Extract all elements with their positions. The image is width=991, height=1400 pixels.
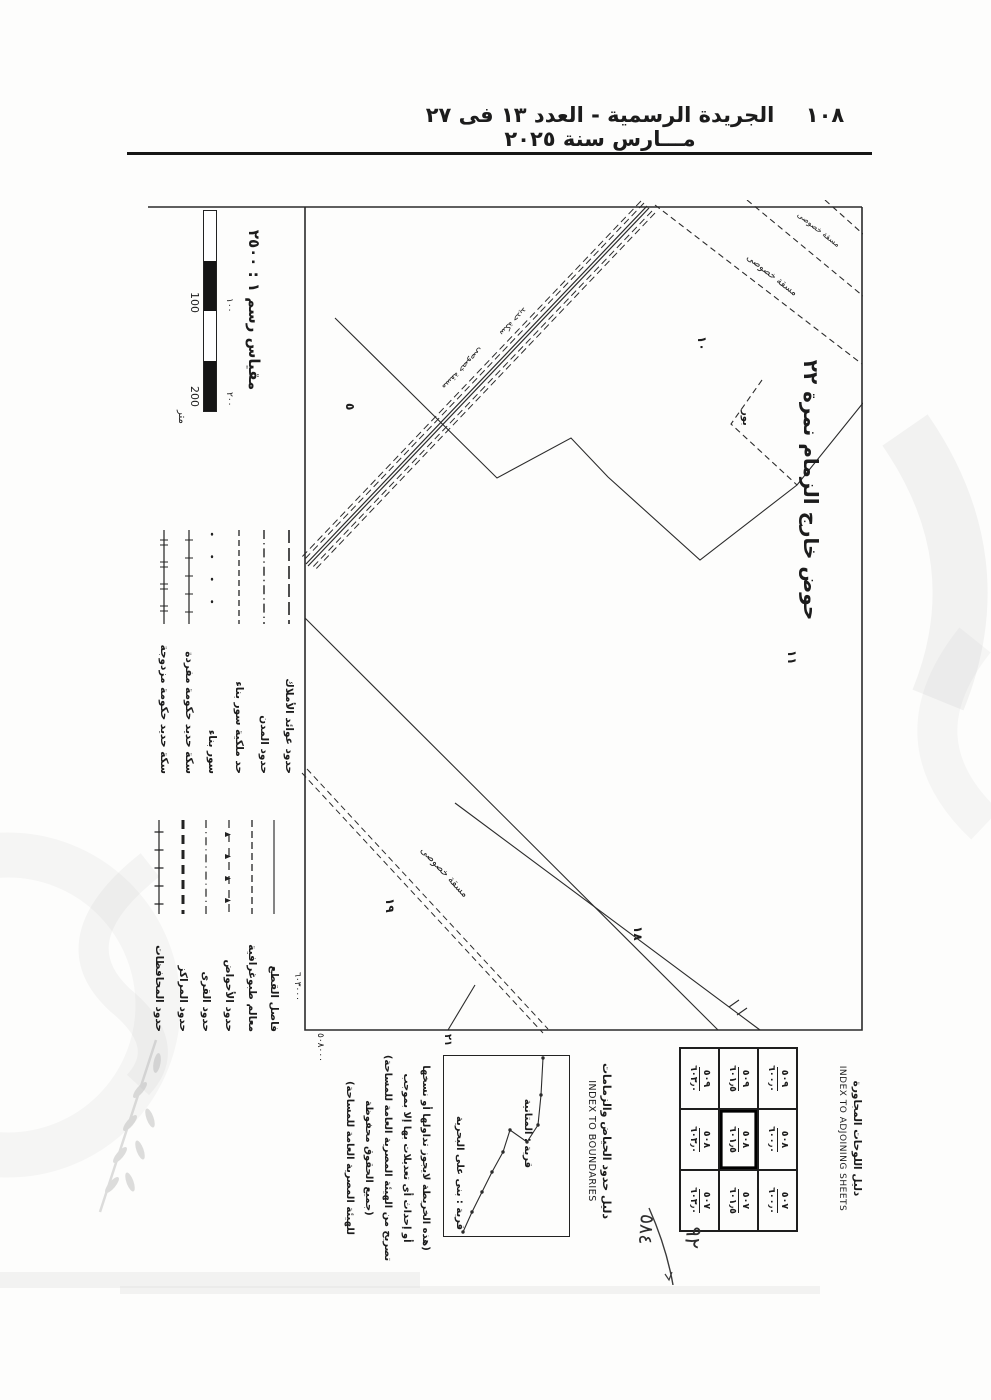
legend-sample-dotted xyxy=(207,530,219,624)
copyright-line: للهيئة المصرية العامة للمساحة) xyxy=(344,1042,355,1274)
land-use-label: بور xyxy=(740,410,751,426)
adjoining-sheet-cell: ٥٠٧٦٠٣٫٠ xyxy=(680,1170,719,1231)
legend-row: فاصل القطع xyxy=(267,820,282,1042)
sheet-col: ٥٠٨ xyxy=(701,1131,711,1148)
adjoining-sheet-cell: ٥٠٧٦٠١٫٥ xyxy=(719,1170,758,1231)
sheet-row: ٦٠٠٫٠ xyxy=(766,1065,776,1092)
sheet-row: ٦٠١٫٥ xyxy=(727,1187,737,1214)
legend-label: سكة حديد حكومة مزدوجة xyxy=(159,624,171,784)
adjoining-index-title-en: INDEX TO ADJOINING SHEETS xyxy=(837,1047,847,1230)
plot-number-18: ١٨ xyxy=(631,926,645,941)
corner-coordinate-east: ٥٠٨٠٠٠ xyxy=(315,1033,325,1062)
scale-200-latin: 200 xyxy=(188,386,201,407)
gazette-header-title: الجريدة الرسمية - العدد ١٣ فى ٢٧ مـــارس… xyxy=(400,103,800,151)
legend-row: حدود المدن xyxy=(257,530,272,784)
sheet-col: ٥٠٨ xyxy=(740,1131,750,1148)
sheet-row: ٦٠٣٫٠ xyxy=(688,1187,698,1214)
plot-number-11: ١١ xyxy=(785,650,799,665)
handwritten-number-top: ٩٢ xyxy=(679,1224,706,1250)
legend-row: حدود القرى xyxy=(199,820,214,1042)
scale-100-arabic: ١٠٠ xyxy=(224,298,234,313)
sheet-row: ٦٠١٫٥ xyxy=(727,1065,737,1092)
legend-sample-solid xyxy=(269,820,281,914)
legend-row: حدود المحافظات xyxy=(152,820,167,1042)
adjoining-sheet-cell: ٥٠٨٦٠٠٫٠ xyxy=(758,1109,797,1170)
legend-sample-dashed xyxy=(234,530,246,624)
scale-200-arabic: ٢٠٠ xyxy=(224,392,234,407)
legend-sample-rail-double xyxy=(159,530,171,624)
legend-label: حدود الأحواض xyxy=(224,914,236,1042)
adjoining-sheet-cell: ٥٠٩٦٠٣٫٠ xyxy=(680,1048,719,1109)
legend-row: معالم طبوغرافية xyxy=(245,820,260,1042)
legend-label: حدود المراكز xyxy=(178,914,190,1042)
plot-number-5: ٥ xyxy=(343,403,357,410)
adjoining-sheet-cell: ٥٠٩٦٠١٫٥ xyxy=(719,1048,758,1109)
corner-coordinate-north: ٦٠٣٠٠٠ xyxy=(292,972,302,1001)
copyright-line: (جميع الحقوق محفوظة xyxy=(363,1042,374,1274)
plot-number-19: ١٩ xyxy=(383,898,397,913)
sheet-col: ٥٠٩ xyxy=(779,1070,789,1087)
legend-row: حد ملكية سور بناء xyxy=(232,530,247,784)
sheet-row: ٦٠١٫٥ xyxy=(727,1126,737,1153)
legend-label: حدود عوائد الأملاك xyxy=(284,624,296,784)
plot-number-10: ١٠ xyxy=(695,336,709,351)
sheet-col: ٥٠٩ xyxy=(701,1070,711,1087)
adjoining-sheet-cell-current: ٥٠٨٦٠١٫٥ xyxy=(719,1109,758,1170)
legend-sample-dash-dot xyxy=(259,530,271,624)
copyright-line: (هذه الخريطة لايجوز تداولها أو نسخها xyxy=(420,1042,431,1274)
scale-100-latin: 100 xyxy=(188,292,201,313)
scale-bar-segment xyxy=(204,261,216,311)
legend-label: معالم طبوغرافية xyxy=(247,914,259,1042)
cadastral-map-sheet: مقياس رسم ١ : ٢٥٠٠ ١٠٠ ٢٠٠ 100 200 متر ح… xyxy=(148,200,863,1285)
adjoining-sheets-grid: ٥٠٩٦٠٠٫٠ ٥٠٨٦٠٠٫٠ ٥٠٧٦٠٠٫٠ ٥٠٩٦٠١٫٥ ٥٠٨٦… xyxy=(679,1047,798,1232)
boundaries-index-title-en: INDEX TO BOUNDARIES xyxy=(586,1045,597,1237)
header-rule xyxy=(127,152,872,155)
scale-bar-segment xyxy=(204,361,216,411)
legend-label: حد ملكية سور بناء xyxy=(234,624,246,784)
scale-unit: متر xyxy=(176,410,187,424)
adjoining-sheet-cell: ٥٠٨٦٠٣٫٠ xyxy=(680,1109,719,1170)
scale-bar-segment xyxy=(204,211,216,261)
village-name-top: قرية : المتانية xyxy=(522,1068,533,1168)
copyright-line: تصريح من الهيئة المصرية العامة للمساحة) xyxy=(382,1042,393,1274)
sheet-col: ٥٠٧ xyxy=(740,1192,750,1209)
village-name-bottom: قرية : بنى على البحرية xyxy=(454,1080,465,1230)
edge-sheet-number-21: ٢١ xyxy=(442,1034,453,1046)
sheet-col: ٥٠٧ xyxy=(701,1192,711,1209)
legend-label: فاصل القطع xyxy=(269,914,281,1042)
legend-sample-dash-dot xyxy=(201,820,213,914)
legend-sample-long-dash xyxy=(284,530,296,624)
copyright-line: أو إحداث أى تعديلات بها إلا بموجب xyxy=(401,1042,412,1274)
handwritten-number-bottom: ٥٨٤ xyxy=(634,1213,658,1245)
legend-label: حدود القرى xyxy=(201,914,213,1042)
adjoining-index-title-ar: دليل اللوحات المجاورة xyxy=(851,1047,863,1230)
legend-row: حدود الأحواض xyxy=(222,820,237,1042)
boundaries-index-title-ar: دليل حدود الحياض والزمامات xyxy=(600,1045,613,1237)
sheet-col: ٥٠٨ xyxy=(779,1131,789,1148)
legend-row: سكة حديد حكومة مفردة xyxy=(182,530,197,784)
legend-label: حدود المحافظات xyxy=(154,914,166,1042)
sheet-row: ٦٠٠٫٠ xyxy=(766,1187,776,1214)
legend-row: حدود المراكز xyxy=(176,820,191,1042)
legend-sample-dashed xyxy=(247,820,259,914)
scale-title: مقياس رسم ١ : ٢٥٠٠ xyxy=(245,210,263,410)
legend-row: سور بناء xyxy=(205,530,220,784)
legend-label: سور بناء xyxy=(207,624,219,784)
legend-sample-dash-triangle xyxy=(224,820,236,914)
sheet-row: ٦٠٣٫٠ xyxy=(688,1065,698,1092)
scale-bar-segment xyxy=(204,311,216,361)
sheet-col: ٥٠٧ xyxy=(779,1192,789,1209)
sheet-col: ٥٠٩ xyxy=(740,1070,750,1087)
page-number: ١٠٨ xyxy=(795,103,855,127)
legend-sample-tick-line xyxy=(154,820,166,914)
scale-bar xyxy=(203,210,217,412)
legend-label: سكة حديد حكومة مفردة xyxy=(184,624,196,784)
sheet-row: ٦٠٠٫٠ xyxy=(766,1126,776,1153)
legend-row: حدود عوائد الأملاك xyxy=(282,530,297,784)
legend-sample-heavy-dash xyxy=(178,820,190,914)
basin-label: حوض خارج الزمام نمرة ٢٢ xyxy=(799,290,823,690)
adjoining-sheet-cell: ٥٠٧٦٠٠٫٠ xyxy=(758,1170,797,1231)
legend-sample-rail-single xyxy=(184,530,196,624)
adjoining-sheet-cell: ٥٠٩٦٠٠٫٠ xyxy=(758,1048,797,1109)
legend-row: سكة حديد حكومة مزدوجة xyxy=(157,530,172,784)
legend-label: حدود المدن xyxy=(259,624,271,784)
sheet-row: ٦٠٣٫٠ xyxy=(688,1126,698,1153)
